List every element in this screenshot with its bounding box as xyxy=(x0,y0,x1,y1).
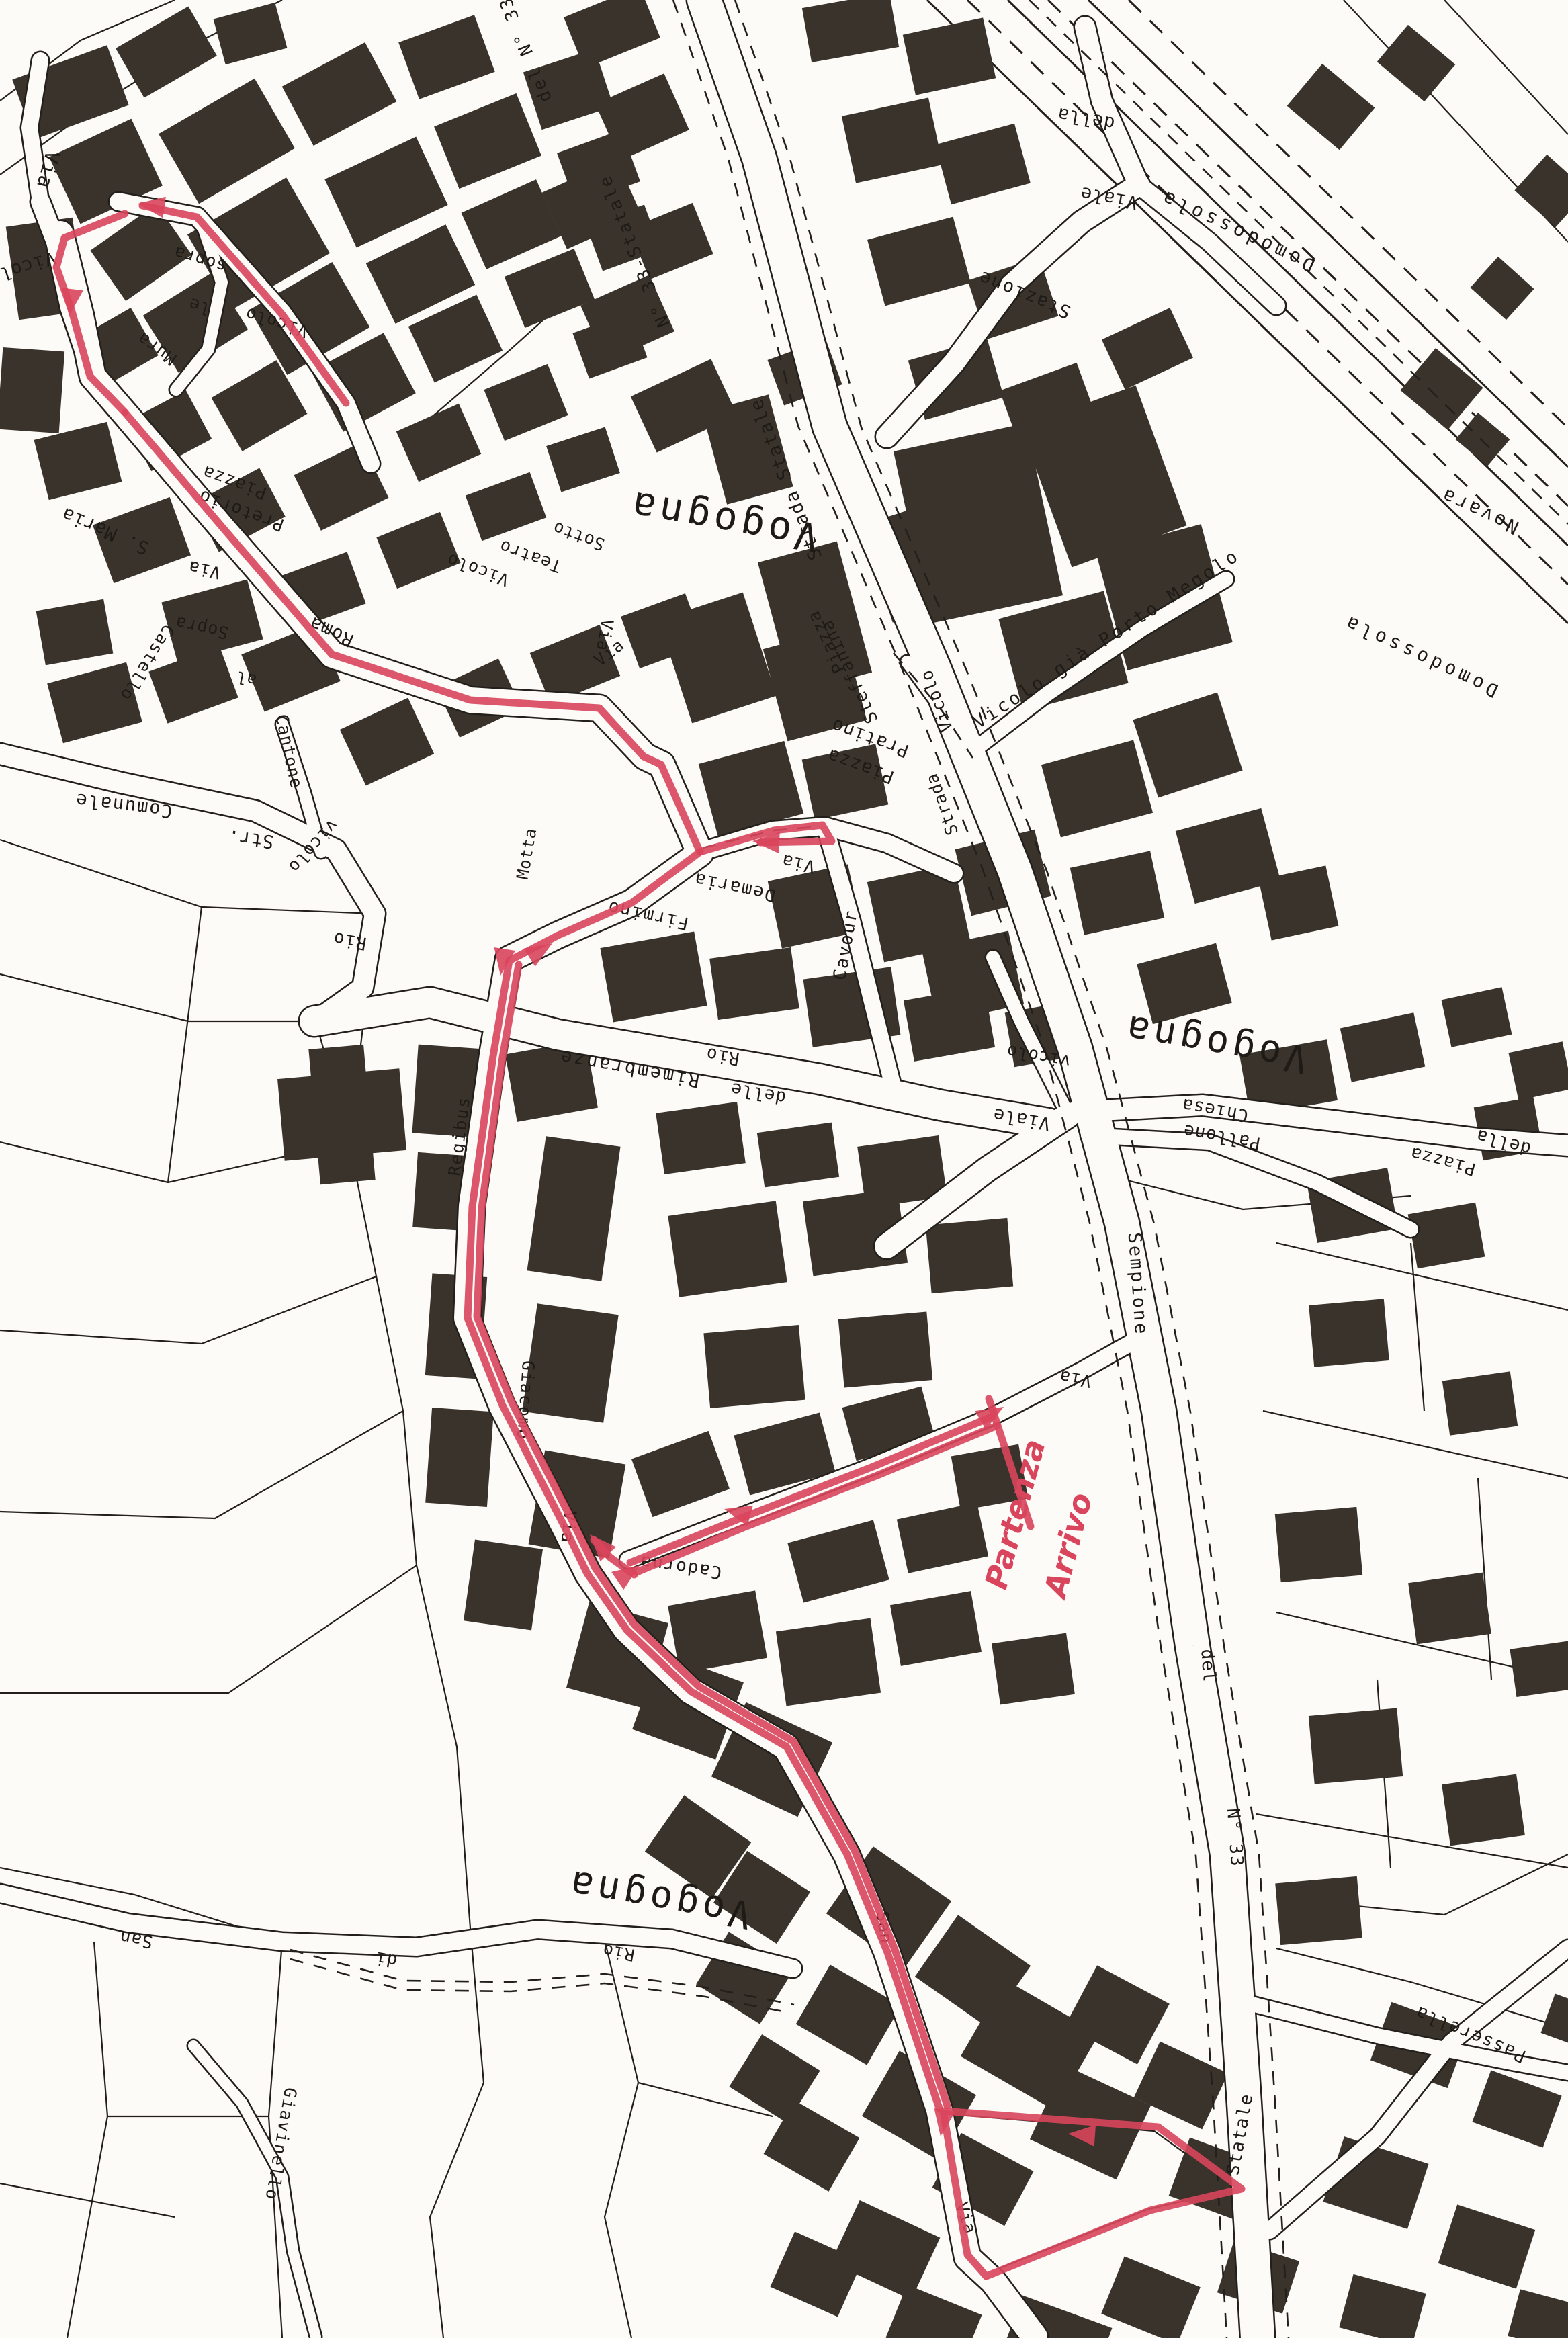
building xyxy=(668,1590,767,1673)
building xyxy=(1133,693,1242,798)
building xyxy=(935,124,1031,204)
building xyxy=(1275,1876,1362,1945)
parcel-line xyxy=(0,974,316,1021)
building xyxy=(1102,308,1193,390)
building xyxy=(214,3,288,64)
building xyxy=(1101,2256,1201,2338)
building xyxy=(709,947,799,1020)
building xyxy=(802,0,899,62)
street-label: Domodossola xyxy=(1339,611,1501,702)
building xyxy=(1041,740,1153,838)
parcel-line xyxy=(67,1942,107,2338)
building xyxy=(1408,1203,1485,1268)
parcel-line xyxy=(168,907,202,1182)
building xyxy=(0,347,64,433)
building xyxy=(897,1502,988,1573)
building xyxy=(1408,1573,1491,1645)
street-label: Motta xyxy=(513,826,541,881)
building xyxy=(324,137,447,248)
road-surface xyxy=(0,754,375,1021)
street-label: Sotto xyxy=(550,518,607,555)
building xyxy=(776,1618,881,1706)
parcel-line xyxy=(0,1276,403,1518)
building xyxy=(34,422,122,500)
building xyxy=(212,360,308,451)
building xyxy=(1510,1641,1568,1697)
building xyxy=(787,1520,889,1602)
building xyxy=(1377,25,1456,101)
building xyxy=(1442,1774,1525,1846)
scanned-map-page: ViaVicolosopraleMuraVicolodel N° 33N° 33… xyxy=(0,0,1568,2338)
building xyxy=(47,662,142,743)
building xyxy=(867,217,971,306)
street-label: Cantone xyxy=(271,712,306,790)
building xyxy=(527,1136,620,1281)
building xyxy=(1134,2042,1228,2130)
building xyxy=(282,42,397,146)
street-label: del xyxy=(1196,1648,1219,1683)
building xyxy=(1438,2204,1535,2288)
finish-label: Arrivo xyxy=(1037,1489,1100,1603)
building xyxy=(376,512,460,589)
building xyxy=(668,1201,787,1297)
building xyxy=(631,1431,730,1517)
building xyxy=(1287,64,1375,150)
building xyxy=(546,427,620,492)
building xyxy=(903,17,996,95)
building xyxy=(904,986,995,1062)
building xyxy=(1275,1507,1362,1582)
building xyxy=(466,472,546,542)
building xyxy=(1442,1371,1518,1435)
building xyxy=(890,1591,982,1666)
building xyxy=(1309,1299,1389,1367)
building xyxy=(308,1045,375,1184)
building xyxy=(838,1311,932,1387)
building xyxy=(464,1539,543,1630)
parcel-line xyxy=(0,2183,175,2217)
building xyxy=(484,364,568,441)
street-label: Vogogna xyxy=(1119,1006,1311,1081)
building xyxy=(340,698,434,786)
building xyxy=(434,93,541,189)
street-label: Novara xyxy=(1436,483,1522,539)
building xyxy=(1340,1012,1426,1082)
building xyxy=(1442,987,1512,1047)
building xyxy=(1472,2070,1561,2147)
building xyxy=(600,932,707,1023)
street-label: Via xyxy=(187,557,222,582)
building xyxy=(1339,2274,1426,2338)
building xyxy=(1508,2289,1568,2338)
building xyxy=(1456,413,1510,466)
building xyxy=(505,249,595,328)
map-canvas: ViaVicolosopraleMuraVicolodel N° 33N° 33… xyxy=(0,0,1568,2338)
building xyxy=(703,1325,805,1408)
street-label: Demaria xyxy=(692,868,777,905)
building xyxy=(1514,155,1568,227)
building xyxy=(656,1102,746,1174)
buildings-layer xyxy=(0,0,1568,2338)
parcel-line xyxy=(0,1411,417,1693)
building xyxy=(757,1123,839,1188)
building xyxy=(36,599,114,665)
parcel-line xyxy=(605,1940,638,2338)
building xyxy=(398,15,495,99)
building xyxy=(1508,1041,1568,1100)
parcel-line xyxy=(1444,0,1568,134)
building xyxy=(992,1633,1075,1705)
building xyxy=(1400,348,1483,430)
parcel-line xyxy=(1263,1411,1568,1478)
street-label: del N° 33 xyxy=(495,0,556,105)
parcel-line xyxy=(417,1565,470,1928)
building xyxy=(842,97,943,183)
building xyxy=(1309,1708,1403,1784)
building xyxy=(1070,851,1165,935)
building xyxy=(926,1218,1013,1293)
street-label: Via xyxy=(780,850,817,877)
street-label: N° 33 xyxy=(1223,1807,1247,1868)
street-label: di xyxy=(374,1947,399,1971)
building xyxy=(425,1408,494,1507)
building xyxy=(1471,257,1534,320)
building xyxy=(396,404,482,482)
